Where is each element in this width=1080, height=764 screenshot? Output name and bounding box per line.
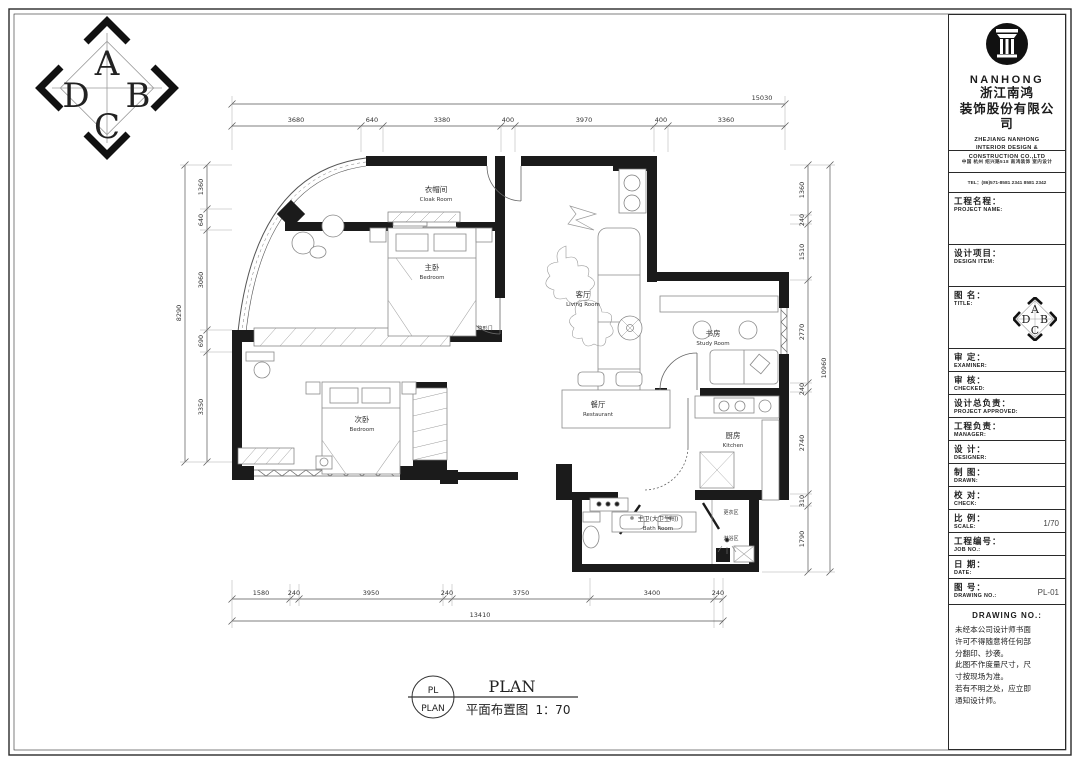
plan-scale: 1：70 <box>536 703 571 717</box>
room-kitchen-en: Kitchen <box>723 443 744 449</box>
dim-bottom-total: 13410 <box>470 611 491 619</box>
field-designer-en: DESIGNER: <box>954 455 1060 461</box>
note-line-6: 若有不明之处，应立即 <box>955 683 1059 695</box>
field-date: 日 期： DATE: <box>949 556 1065 579</box>
room-study-en: Study Room <box>696 341 729 347</box>
note-line-3: 分翻印、抄袭。 <box>955 648 1059 660</box>
room-bath-en: Bath Room <box>643 526 673 532</box>
field-check-cn: 校 对： <box>954 489 1060 501</box>
dim-top-4: 3970 <box>576 116 593 124</box>
field-check: 校 对： CHECK: <box>949 487 1065 510</box>
field-examiner-en: EXAMINER: <box>954 363 1060 369</box>
room-master-cn: 主卧 <box>425 262 440 272</box>
note-line-1: 未经本公司设计师书面 <box>955 624 1059 636</box>
field-design-item-en: DESIGN ITEM: <box>954 259 1060 265</box>
plan-title: PL PLAN PLAN 平面布置图 1：70 <box>408 676 578 718</box>
dim-bot-1: 240 <box>288 589 300 597</box>
company-address: 中国 杭州 绍兴路518 南鸿装饰 室内设计 <box>949 151 1065 173</box>
lounge-chairs <box>292 215 344 258</box>
notes-title: DRAWING NO.: <box>955 611 1059 620</box>
drawing-sheet: A B C D <box>0 0 1080 764</box>
field-date-en: DATE: <box>954 570 1060 576</box>
logo-letter-c: C <box>94 107 120 147</box>
logo-letter-a: A <box>94 44 120 84</box>
room-kitchen-cn: 厨房 <box>726 430 741 440</box>
note-line-7: 通知设计师。 <box>955 695 1059 707</box>
field-project-approved: 设计总负责： PROJECT APPROVED: <box>949 395 1065 418</box>
field-designer-cn: 设 计： <box>954 443 1060 455</box>
room-dining-en: Restaurant <box>583 412 614 418</box>
dim-bot-3: 240 <box>441 589 453 597</box>
dim-right-1: 240 <box>798 214 806 226</box>
dim-right-0: 1360 <box>798 182 806 199</box>
field-scale-value: 1/70 <box>1043 519 1059 528</box>
dim-bot-0: 1580 <box>253 589 270 597</box>
company-en-line1: ZHEJIANG NANHONG <box>954 136 1060 144</box>
company-name-cn-2: 装饰股份有限公司 <box>954 102 1060 133</box>
dim-top-5: 400 <box>655 116 667 124</box>
dim-left-total: 8290 <box>175 305 183 322</box>
dim-right-total: 10960 <box>820 358 828 379</box>
dim-right-2: 1510 <box>798 244 806 261</box>
dim-bot-6: 240 <box>712 589 724 597</box>
dim-left-4: 3350 <box>197 399 205 416</box>
field-drawing-no: 图 号： DRAWING NO.: PL-01 <box>949 579 1065 605</box>
dim-bot-5: 3400 <box>644 589 661 597</box>
field-manager: 工程负责： MANAGER: <box>949 418 1065 441</box>
floor-plan-canvas: A B C D <box>0 0 1080 764</box>
field-project-name-cn: 工程名程： <box>954 195 1060 207</box>
room-study-cn: 书房 <box>706 328 721 338</box>
note-line-2: 许可不得随意将任何部 <box>955 636 1059 648</box>
field-checked-en: CHECKED: <box>954 386 1060 392</box>
field-checked: 审 核： CHECKED: <box>949 372 1065 395</box>
field-examiner: 审 定： EXAMINER: <box>949 349 1065 372</box>
dim-bot-2: 3950 <box>363 589 380 597</box>
field-job-no-cn: 工程编号： <box>954 535 1060 547</box>
field-check-en: CHECK: <box>954 501 1060 507</box>
dining-furniture <box>562 372 670 428</box>
field-project-approved-en: PROJECT APPROVED: <box>954 409 1060 415</box>
dim-bot-4: 3750 <box>513 589 530 597</box>
field-manager-cn: 工程负责： <box>954 420 1060 432</box>
room-bed2-en: Bedroom <box>350 427 375 433</box>
mini-letter-d: D <box>1022 313 1031 326</box>
plan-symbol-top: PL <box>428 686 438 696</box>
field-date-cn: 日 期： <box>954 558 1060 570</box>
room-bed2-cn: 次卧 <box>355 414 370 424</box>
field-designer: 设 计： DESIGNER: <box>949 441 1065 464</box>
dim-left-3: 690 <box>197 335 205 347</box>
note-line-4: 此图不作度量尺寸，尺 <box>955 659 1059 671</box>
column-logo-icon <box>984 21 1030 67</box>
plan-title-en: PLAN <box>489 677 536 696</box>
dim-top-0: 3680 <box>288 116 305 124</box>
dim-left-0: 1360 <box>197 179 205 196</box>
mini-letter-b: B <box>1040 313 1048 326</box>
dim-top-2: 3380 <box>434 116 451 124</box>
field-drawn: 制 图： DRAWN: <box>949 464 1065 487</box>
dim-top-1: 640 <box>366 116 378 124</box>
field-design-item: 设计项目： DESIGN ITEM: <box>949 245 1065 287</box>
company-tel: TEL：(86)571-8581 2341 8581 2342 <box>949 173 1065 193</box>
room-dining-cn: 餐厅 <box>591 400 606 409</box>
field-manager-en: MANAGER: <box>954 432 1060 438</box>
field-design-item-cn: 设计项目： <box>954 247 1060 259</box>
field-examiner-cn: 审 定： <box>954 351 1060 363</box>
company-header: NANHONG 浙江南鸿 装饰股份有限公司 ZHEJIANG NANHONG I… <box>949 15 1065 151</box>
corner-logo: A B C D <box>40 21 174 155</box>
room-cloak-en: Cloak Room <box>420 197 453 203</box>
study-furniture <box>660 296 778 384</box>
logo-letter-d: D <box>62 76 89 116</box>
dim-top-6: 3360 <box>718 116 735 124</box>
plan-symbol-bottom: PLAN <box>421 704 445 714</box>
dim-right-7: 1790 <box>798 531 806 548</box>
field-title: 图 名： TITLE: A B C D <box>949 287 1065 349</box>
field-project-name-en: PROJECT NAME: <box>954 207 1060 213</box>
sheet-border <box>9 9 1071 755</box>
room-master-en: Bedroom <box>420 275 445 281</box>
room-living-en: Living Room <box>566 302 600 308</box>
dim-right-6: 310 <box>798 495 806 507</box>
brand-name: NANHONG <box>954 74 1060 86</box>
dim-left-2: 3060 <box>197 272 205 289</box>
label-hidden-door: 隐形门 <box>477 325 492 332</box>
dim-right-5: 2740 <box>798 435 806 452</box>
mini-letter-a: A <box>1030 303 1040 316</box>
title-block: NANHONG 浙江南鸿 装饰股份有限公司 ZHEJIANG NANHONG I… <box>948 14 1066 750</box>
dim-left-1: 640 <box>197 214 205 226</box>
field-checked-cn: 审 核： <box>954 374 1060 386</box>
field-drawing-no-value: PL-01 <box>1038 588 1059 597</box>
field-job-no: 工程编号： JOB NO.: <box>949 533 1065 556</box>
field-scale: 比 例： SCALE: 1/70 <box>949 510 1065 533</box>
company-name-cn-1: 浙江南鸿 <box>954 86 1060 102</box>
zone-dressing: 更衣区 <box>723 509 738 516</box>
mini-diamond-logo: A B C D <box>1013 297 1057 341</box>
dim-top-total: 15030 <box>752 94 773 102</box>
mini-letter-c: C <box>1031 324 1039 337</box>
field-drawn-cn: 制 图： <box>954 466 1060 478</box>
field-project-name: 工程名程： PROJECT NAME: <box>949 193 1065 245</box>
dim-top-3: 400 <box>502 116 514 124</box>
room-living-cn: 客厅 <box>576 289 591 299</box>
dim-right-3: 2770 <box>798 324 806 341</box>
room-bath-cn: 主卫(大卫生间) <box>638 515 679 523</box>
logo-letter-b: B <box>126 76 151 116</box>
master-bed <box>370 228 492 336</box>
notes-section: DRAWING NO.: 未经本公司设计师书面 许可不得随意将任何部 分翻印、抄… <box>949 605 1065 749</box>
note-line-5: 寸按现场为准。 <box>955 671 1059 683</box>
plan-title-cn: 平面布置图 <box>466 702 529 717</box>
walls <box>232 156 789 572</box>
field-job-no-en: JOB NO.: <box>954 547 1060 553</box>
field-drawn-en: DRAWN: <box>954 478 1060 484</box>
field-project-approved-cn: 设计总负责： <box>954 397 1060 409</box>
zone-shower: 淋浴区 <box>723 535 738 542</box>
room-cloak-cn: 衣帽间 <box>425 184 448 194</box>
dim-right-4: 240 <box>798 383 806 395</box>
